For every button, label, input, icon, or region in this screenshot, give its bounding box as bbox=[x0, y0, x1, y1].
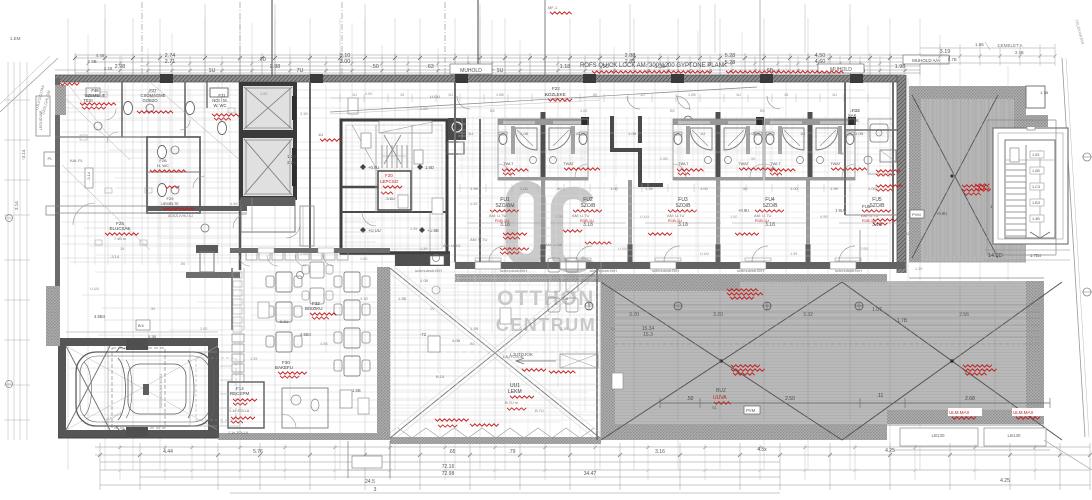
svg-text:KAL PL: KAL PL bbox=[70, 159, 83, 163]
svg-text:LB130: LB130 bbox=[1007, 433, 1021, 438]
svg-text:MUHOLD: MUHOLD bbox=[460, 68, 482, 74]
svg-text:SZEK.: SZEK. bbox=[848, 118, 860, 123]
svg-text:1U: 1U bbox=[832, 93, 837, 97]
svg-text:1.0B: 1.0B bbox=[748, 131, 757, 136]
svg-text:FU5: FU5 bbox=[862, 204, 871, 209]
svg-text:MF-1: MF-1 bbox=[548, 5, 558, 10]
svg-text:ROFS QUICK LOCK AM. 300*1200 G: ROFS QUICK LOCK AM. 300*1200 GYPTONE PLA… bbox=[580, 63, 727, 69]
svg-text:BUZ: BUZ bbox=[716, 388, 726, 394]
svg-text:-3.14: -3.14 bbox=[86, 171, 91, 181]
svg-text:4.5B: 4.5B bbox=[230, 202, 238, 206]
svg-text:U.UU: U.UU bbox=[430, 94, 440, 99]
svg-text:1.0B: 1.0B bbox=[520, 131, 529, 136]
svg-text:.90: .90 bbox=[150, 307, 155, 311]
svg-text:.90: .90 bbox=[750, 157, 755, 161]
svg-text:U.UU: U.UU bbox=[850, 109, 860, 113]
svg-text:.65: .65 bbox=[449, 449, 456, 455]
svg-text:1U: 1U bbox=[468, 131, 473, 136]
svg-text:1.98: 1.98 bbox=[895, 64, 906, 70]
svg-text:GOBZO: GOBZO bbox=[142, 98, 158, 103]
svg-text:ULM.MAX: ULM.MAX bbox=[1013, 410, 1034, 415]
svg-text:1.00: 1.00 bbox=[520, 186, 529, 191]
svg-text:schmutzstr.B/H: schmutzstr.B/H bbox=[737, 268, 764, 273]
svg-text:LEGUDVAR: LEGUDVAR bbox=[39, 110, 43, 130]
svg-text:TWLT: TWLT bbox=[503, 161, 514, 166]
svg-text:1.0B: 1.0B bbox=[855, 131, 864, 136]
svg-text:4.5x: 4.5x bbox=[757, 447, 767, 453]
svg-text:3: 3 bbox=[374, 487, 377, 493]
svg-text:2.25: 2.25 bbox=[287, 160, 296, 165]
svg-text:1.00: 1.00 bbox=[520, 327, 527, 331]
svg-text:1.39: 1.39 bbox=[250, 357, 257, 361]
svg-text:1.00: 1.00 bbox=[365, 92, 372, 96]
svg-text:.50: .50 bbox=[556, 186, 562, 191]
svg-text:15: 15 bbox=[784, 93, 788, 97]
svg-text:1.7B4: 1.7B4 bbox=[1030, 253, 1042, 258]
svg-text:1.EM: 1.EM bbox=[10, 36, 21, 41]
svg-text:schmutzstr.B/H: schmutzstr.B/H bbox=[500, 268, 527, 273]
svg-text:B.7U m: B.7U m bbox=[505, 400, 519, 405]
svg-text:1.00: 1.00 bbox=[580, 109, 587, 113]
svg-text:1.00: 1.00 bbox=[730, 215, 737, 219]
svg-text:B5: B5 bbox=[490, 109, 495, 113]
svg-text:1.1x ZOLLA: 1.1x ZOLLA bbox=[228, 431, 249, 435]
svg-text:2.98: 2.98 bbox=[115, 64, 126, 70]
svg-text:3.1B: 3.1B bbox=[300, 112, 308, 116]
svg-text:5.28: 5.28 bbox=[725, 53, 736, 59]
svg-text:3.16: 3.16 bbox=[655, 449, 665, 455]
svg-text:R1B.1U: R1B.1U bbox=[580, 218, 594, 223]
svg-text:1.07: 1.07 bbox=[872, 307, 882, 313]
svg-text:4.44: 4.44 bbox=[163, 449, 173, 455]
svg-text:1.20: 1.20 bbox=[287, 154, 296, 159]
svg-text:2.50: 2.50 bbox=[785, 396, 795, 402]
svg-text:R1B.1U: R1B.1U bbox=[755, 218, 769, 223]
svg-text:1.39: 1.39 bbox=[470, 186, 479, 191]
svg-text:1.B3: 1.B3 bbox=[1032, 201, 1040, 205]
svg-text:5.8U: 5.8U bbox=[280, 319, 289, 324]
svg-text:6B: 6B bbox=[767, 68, 774, 74]
svg-text:1.00: 1.00 bbox=[200, 327, 207, 331]
svg-text:B.7U: B.7U bbox=[535, 408, 544, 413]
svg-text:schmutzstr.B/H: schmutzstr.B/H bbox=[835, 268, 862, 273]
svg-text:U.UU: U.UU bbox=[700, 252, 710, 256]
svg-text:1.7B: 1.7B bbox=[1040, 90, 1049, 95]
svg-text:1.5B: 1.5B bbox=[398, 296, 407, 301]
svg-text:1.1x ZOLLA: 1.1x ZOLLA bbox=[229, 409, 250, 413]
svg-text:5.7B: 5.7B bbox=[948, 57, 957, 62]
svg-text:B5: B5 bbox=[470, 342, 475, 346]
svg-text:F29: F29 bbox=[167, 196, 175, 201]
svg-text:1.C3: 1.C3 bbox=[1032, 185, 1040, 189]
svg-text:3.1B: 3.1B bbox=[555, 215, 563, 219]
svg-text:B5: B5 bbox=[905, 232, 910, 236]
svg-text:.79: .79 bbox=[509, 449, 516, 455]
svg-text:.90: .90 bbox=[840, 152, 845, 156]
svg-text:S1: S1 bbox=[712, 405, 718, 410]
svg-text:PVM: PVM bbox=[746, 408, 756, 413]
svg-text:1U: 1U bbox=[610, 326, 615, 331]
svg-text:4.0B: 4.0B bbox=[420, 278, 429, 283]
svg-text:AM: U.7U: AM: U.7U bbox=[443, 243, 460, 248]
svg-text:1.00: 1.00 bbox=[790, 186, 799, 191]
svg-text:1U: 1U bbox=[318, 132, 323, 137]
svg-text:TWLT: TWLT bbox=[770, 161, 781, 166]
svg-text:5.3B: 5.3B bbox=[148, 334, 157, 339]
svg-text:TWAT: TWAT bbox=[830, 161, 841, 166]
svg-text:1.00: 1.00 bbox=[260, 92, 267, 96]
svg-text:5.76: 5.76 bbox=[253, 449, 263, 455]
svg-text:AM: U.6B: AM: U.6B bbox=[545, 242, 562, 247]
svg-text:2.0B: 2.0B bbox=[560, 296, 569, 301]
svg-text:1U: 1U bbox=[575, 131, 580, 136]
svg-text:2.0B: 2.0B bbox=[300, 252, 308, 256]
svg-text:15: 15 bbox=[120, 247, 124, 251]
svg-text:LB130: LB130 bbox=[931, 433, 945, 438]
svg-text:UEMELTE: UEMELTE bbox=[161, 202, 179, 206]
svg-text:AM: U.7U: AM: U.7U bbox=[470, 237, 487, 242]
svg-text:1.7B: 1.7B bbox=[897, 318, 908, 324]
svg-text:1U: 1U bbox=[700, 131, 705, 136]
svg-text:SZONGA AB 1U1U: SZONGA AB 1U1U bbox=[158, 374, 163, 408]
svg-text:1.00: 1.00 bbox=[360, 257, 367, 261]
svg-text:1.0B: 1.0B bbox=[496, 93, 504, 97]
svg-text:F22: F22 bbox=[552, 86, 560, 91]
svg-text:1.00: 1.00 bbox=[610, 186, 619, 191]
svg-text:.50: .50 bbox=[371, 64, 379, 70]
svg-text:PL: PL bbox=[48, 156, 54, 161]
svg-text:4.25: 4.25 bbox=[885, 448, 895, 454]
svg-text:-3.6U: -3.6U bbox=[385, 196, 395, 201]
svg-text:1.9U: 1.9U bbox=[835, 208, 844, 213]
svg-text:BAKEFU: BAKEFU bbox=[275, 365, 293, 370]
svg-text:1.39: 1.39 bbox=[410, 227, 417, 231]
svg-text:15: 15 bbox=[430, 307, 434, 311]
svg-text:3.00: 3.00 bbox=[340, 59, 351, 65]
svg-text:LJUTOJOK: LJUTOJOK bbox=[503, 354, 524, 359]
svg-text:7.4B m: 7.4B m bbox=[114, 237, 126, 241]
svg-text:1.39: 1.39 bbox=[420, 247, 427, 251]
svg-text:1.0B: 1.0B bbox=[1032, 169, 1040, 173]
svg-text:7U: 7U bbox=[296, 68, 303, 74]
svg-text:2.56: 2.56 bbox=[959, 312, 969, 318]
svg-text:1.39: 1.39 bbox=[645, 186, 654, 191]
svg-text:R1B.1U: R1B.1U bbox=[668, 218, 682, 223]
svg-text:72.16: 72.16 bbox=[442, 464, 455, 470]
svg-text:TWAT: TWAT bbox=[738, 161, 749, 166]
svg-text:1.5B: 1.5B bbox=[470, 326, 479, 331]
svg-text:1.0B: 1.0B bbox=[688, 93, 696, 97]
svg-text:1U: 1U bbox=[448, 93, 453, 97]
svg-text:.11: .11 bbox=[877, 393, 884, 399]
svg-text:B.15: B.15 bbox=[436, 374, 445, 379]
svg-text:TWAT: TWAT bbox=[563, 161, 574, 166]
svg-text:F20: F20 bbox=[385, 173, 393, 178]
svg-text:R1B.1U: R1B.1U bbox=[862, 218, 876, 223]
svg-text:TWLT: TWLT bbox=[678, 161, 689, 166]
svg-text:PVM: PVM bbox=[912, 212, 921, 217]
svg-text:ADSZLIVHU 1U: ADSZLIVHU 1U bbox=[168, 214, 194, 218]
svg-text:1.65: 1.65 bbox=[975, 42, 984, 47]
svg-text:14.2D: 14.2D bbox=[988, 253, 1003, 259]
svg-text:ELUCSAK: ELUCSAK bbox=[109, 226, 130, 231]
svg-text:U.UU: U.UU bbox=[90, 287, 100, 291]
svg-text:1.39: 1.39 bbox=[915, 267, 922, 271]
svg-text:2.9B: 2.9B bbox=[87, 59, 96, 64]
svg-text:4.5B4: 4.5B4 bbox=[300, 332, 312, 337]
svg-text:24.5: 24.5 bbox=[365, 479, 375, 485]
svg-text:2.98: 2.98 bbox=[270, 64, 281, 70]
svg-text:+U.6B: +U.6B bbox=[427, 228, 439, 233]
svg-text:+0.8U: +0.8U bbox=[936, 211, 947, 216]
svg-text:U.UU: U.UU bbox=[618, 247, 628, 251]
svg-text:1.53: 1.53 bbox=[1032, 153, 1039, 157]
svg-text:3.1B: 3.1B bbox=[360, 297, 368, 301]
svg-text:-3.14: -3.14 bbox=[21, 149, 26, 160]
svg-text:1.00: 1.00 bbox=[700, 186, 709, 191]
svg-text:1U: 1U bbox=[208, 68, 215, 74]
svg-text:1U: 1U bbox=[800, 131, 805, 136]
svg-text:-72: -72 bbox=[420, 332, 427, 337]
svg-text:.50: .50 bbox=[180, 262, 185, 266]
svg-text:BISZIKU: BISZIKU bbox=[305, 306, 323, 311]
svg-text:2.0B: 2.0B bbox=[860, 247, 868, 251]
svg-text:+0.8U: +0.8U bbox=[738, 208, 749, 213]
svg-text:4.46: 4.46 bbox=[96, 53, 105, 58]
svg-text:1.0B: 1.0B bbox=[628, 131, 637, 136]
svg-text:4.0B: 4.0B bbox=[452, 338, 461, 343]
svg-text:UUVA: UUVA bbox=[713, 395, 727, 401]
svg-text:.63: .63 bbox=[426, 64, 434, 70]
svg-text:1U: 1U bbox=[352, 93, 357, 97]
svg-text:R1B.1U: R1B.1U bbox=[495, 218, 509, 223]
svg-text:KOZLEKE: KOZLEKE bbox=[545, 92, 566, 97]
svg-text:-3.14: -3.14 bbox=[110, 254, 120, 259]
svg-text:1.5B: 1.5B bbox=[352, 388, 361, 393]
svg-text:3.14: 3.14 bbox=[14, 201, 19, 210]
svg-text:1.EMELET A: 1.EMELET A bbox=[997, 43, 1023, 48]
svg-text:LEPCSO: LEPCSO bbox=[380, 179, 399, 184]
svg-text:4.5B4: 4.5B4 bbox=[408, 260, 419, 265]
svg-text:MUHOLD A/A: MUHOLD A/A bbox=[912, 58, 940, 63]
svg-text:15: 15 bbox=[400, 93, 404, 97]
svg-text:1.18: 1.18 bbox=[560, 64, 571, 70]
svg-text:3.1B: 3.1B bbox=[560, 327, 568, 331]
svg-text:schmutzstr.B/H: schmutzstr.B/H bbox=[415, 268, 442, 273]
svg-text:2.0B: 2.0B bbox=[420, 107, 428, 111]
svg-text:H. WC: H. WC bbox=[157, 163, 169, 168]
svg-text:4.5B: 4.5B bbox=[820, 215, 828, 219]
svg-text:2.71: 2.71 bbox=[165, 59, 176, 65]
svg-text:.50: .50 bbox=[687, 396, 694, 402]
svg-text:2.68: 2.68 bbox=[965, 396, 975, 402]
svg-text:+U.UU: +U.UU bbox=[368, 228, 381, 233]
svg-text:B5: B5 bbox=[670, 109, 675, 113]
svg-text:72.98: 72.98 bbox=[442, 471, 455, 477]
svg-text:.70: .70 bbox=[258, 57, 266, 63]
svg-text:+0.8U: +0.8U bbox=[368, 165, 379, 170]
svg-text:B5: B5 bbox=[760, 109, 765, 113]
svg-text:2.4B: 2.4B bbox=[1015, 50, 1024, 55]
svg-text:4.5B: 4.5B bbox=[320, 342, 328, 346]
svg-text:.50: .50 bbox=[742, 186, 748, 191]
svg-text:schmutzstr.B/H: schmutzstr.B/H bbox=[652, 268, 679, 273]
svg-text:1.4B: 1.4B bbox=[1032, 217, 1040, 221]
svg-text:3.20: 3.20 bbox=[713, 312, 723, 318]
svg-text:ULM.MAX: ULM.MAX bbox=[949, 410, 970, 415]
svg-text:1.00: 1.00 bbox=[868, 186, 877, 191]
svg-text:W. WC: W. WC bbox=[213, 103, 226, 108]
svg-text:15.3: 15.3 bbox=[643, 332, 653, 338]
svg-text:34.47: 34.47 bbox=[584, 471, 597, 477]
svg-text:4.5B4: 4.5B4 bbox=[94, 314, 106, 319]
svg-text:1U: 1U bbox=[496, 68, 503, 74]
svg-text:1U: 1U bbox=[736, 93, 741, 97]
svg-text:1.39: 1.39 bbox=[830, 186, 839, 191]
svg-text:1.9D: 1.9D bbox=[425, 165, 434, 170]
svg-text:4.25: 4.25 bbox=[1000, 478, 1010, 484]
svg-text:2.0B: 2.0B bbox=[660, 157, 668, 161]
svg-text:LEKM: LEKM bbox=[508, 389, 522, 395]
svg-text:B/4: B/4 bbox=[138, 324, 144, 328]
svg-text:4.1B: 4.1B bbox=[104, 66, 113, 71]
svg-text:1.39: 1.39 bbox=[790, 252, 797, 256]
